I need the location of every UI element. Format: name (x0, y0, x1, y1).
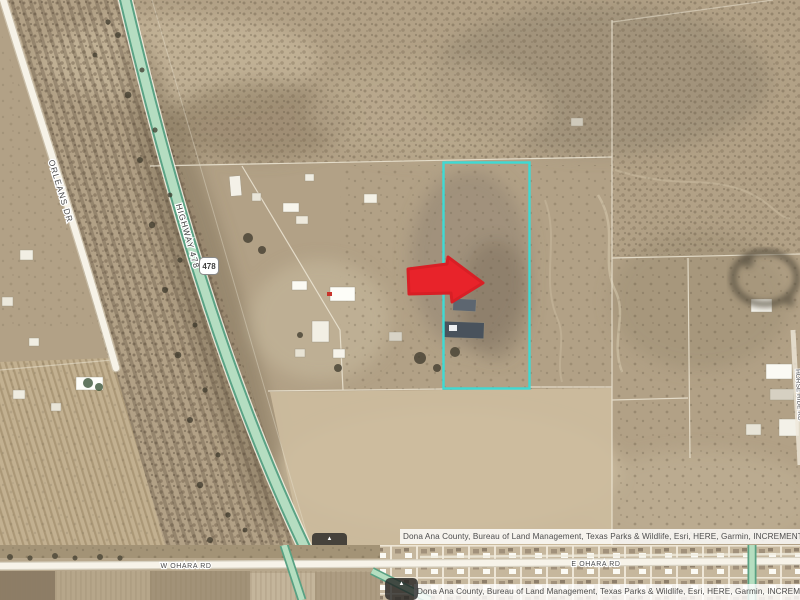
satellite-map-primary[interactable]: HORSE RIDE RD ORLEANS DR HIGHWAY 478 478 (0, 0, 800, 545)
up-triangle-icon: ▲ (327, 534, 333, 544)
map-attribution-primary: Dona Ana County, Bureau of Land Manageme… (400, 529, 800, 544)
plowed-field (270, 388, 612, 545)
attribution-expand-button-secondary[interactable]: ▲ (385, 578, 418, 600)
fields-left (0, 545, 380, 600)
highway-shield-number: 478 (202, 262, 216, 271)
map-attribution-secondary: Dona Ana County, Bureau of Land Manageme… (414, 584, 800, 600)
e-ohara-rd-label: E OHARA RD (571, 561, 620, 568)
up-triangle-icon: ▲ (399, 579, 405, 589)
attribution-expand-button-primary[interactable]: ▲ (312, 533, 347, 545)
map-viewport: HORSE RIDE RD ORLEANS DR HIGHWAY 478 478 (0, 0, 800, 600)
highway-shield: 478 (200, 258, 219, 275)
w-ohara-rd-label: W OHARA RD (160, 563, 211, 570)
